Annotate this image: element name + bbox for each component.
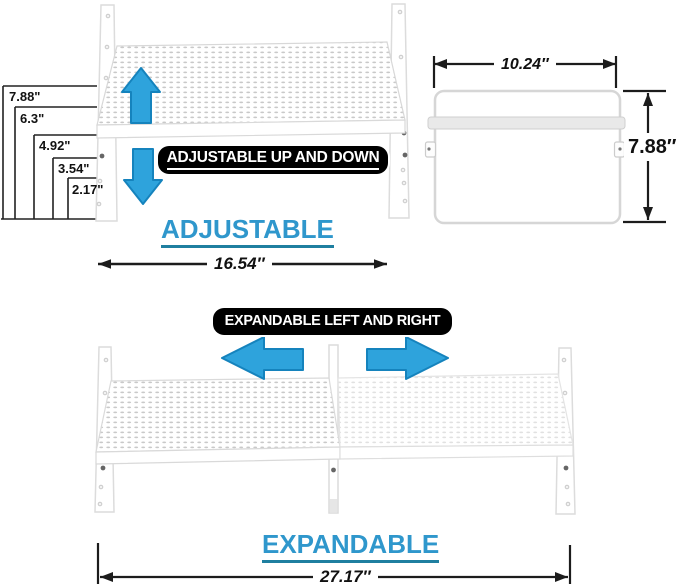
side-view-width-label: 10.24″ <box>494 54 556 76</box>
right-arrow-icon <box>367 337 448 379</box>
expandable-heading: EXPANDABLE <box>262 531 439 563</box>
adjustable-banner: ADJUSTABLE UP AND DOWN <box>158 146 388 174</box>
width-label-16-54: 16.54″ <box>207 253 272 275</box>
height-label-1: 7.88" <box>9 89 40 104</box>
left-arrow-icon <box>222 337 303 379</box>
width-label-27-17: 27.17″ <box>313 566 378 587</box>
expandable-banner-label: EXPANDABLE LEFT AND RIGHT <box>225 314 441 329</box>
expandable-shelf-drawing <box>95 345 575 514</box>
height-label-4: 3.54" <box>58 161 89 176</box>
expandable-heading-text: EXPANDABLE <box>262 531 439 563</box>
adjustable-heading: ADJUSTABLE <box>161 216 334 248</box>
shelf-dimensions-infographic: 7.88" 6.3" 4.92" 3.54" 2.17" ADJUSTABLE … <box>0 0 679 587</box>
diagram-artwork <box>0 0 679 587</box>
adjustable-heading-text: ADJUSTABLE <box>161 216 334 248</box>
height-label-3: 4.92" <box>39 138 70 153</box>
side-view-height-label: 7.88″ <box>624 133 679 161</box>
side-view-drawing <box>426 91 626 223</box>
down-arrow-icon <box>124 149 162 204</box>
height-label-5: 2.17" <box>72 182 103 197</box>
height-label-2: 6.3" <box>20 111 44 126</box>
expandable-banner: EXPANDABLE LEFT AND RIGHT <box>213 308 452 335</box>
adjustable-banner-label: ADJUSTABLE UP AND DOWN <box>167 150 380 170</box>
